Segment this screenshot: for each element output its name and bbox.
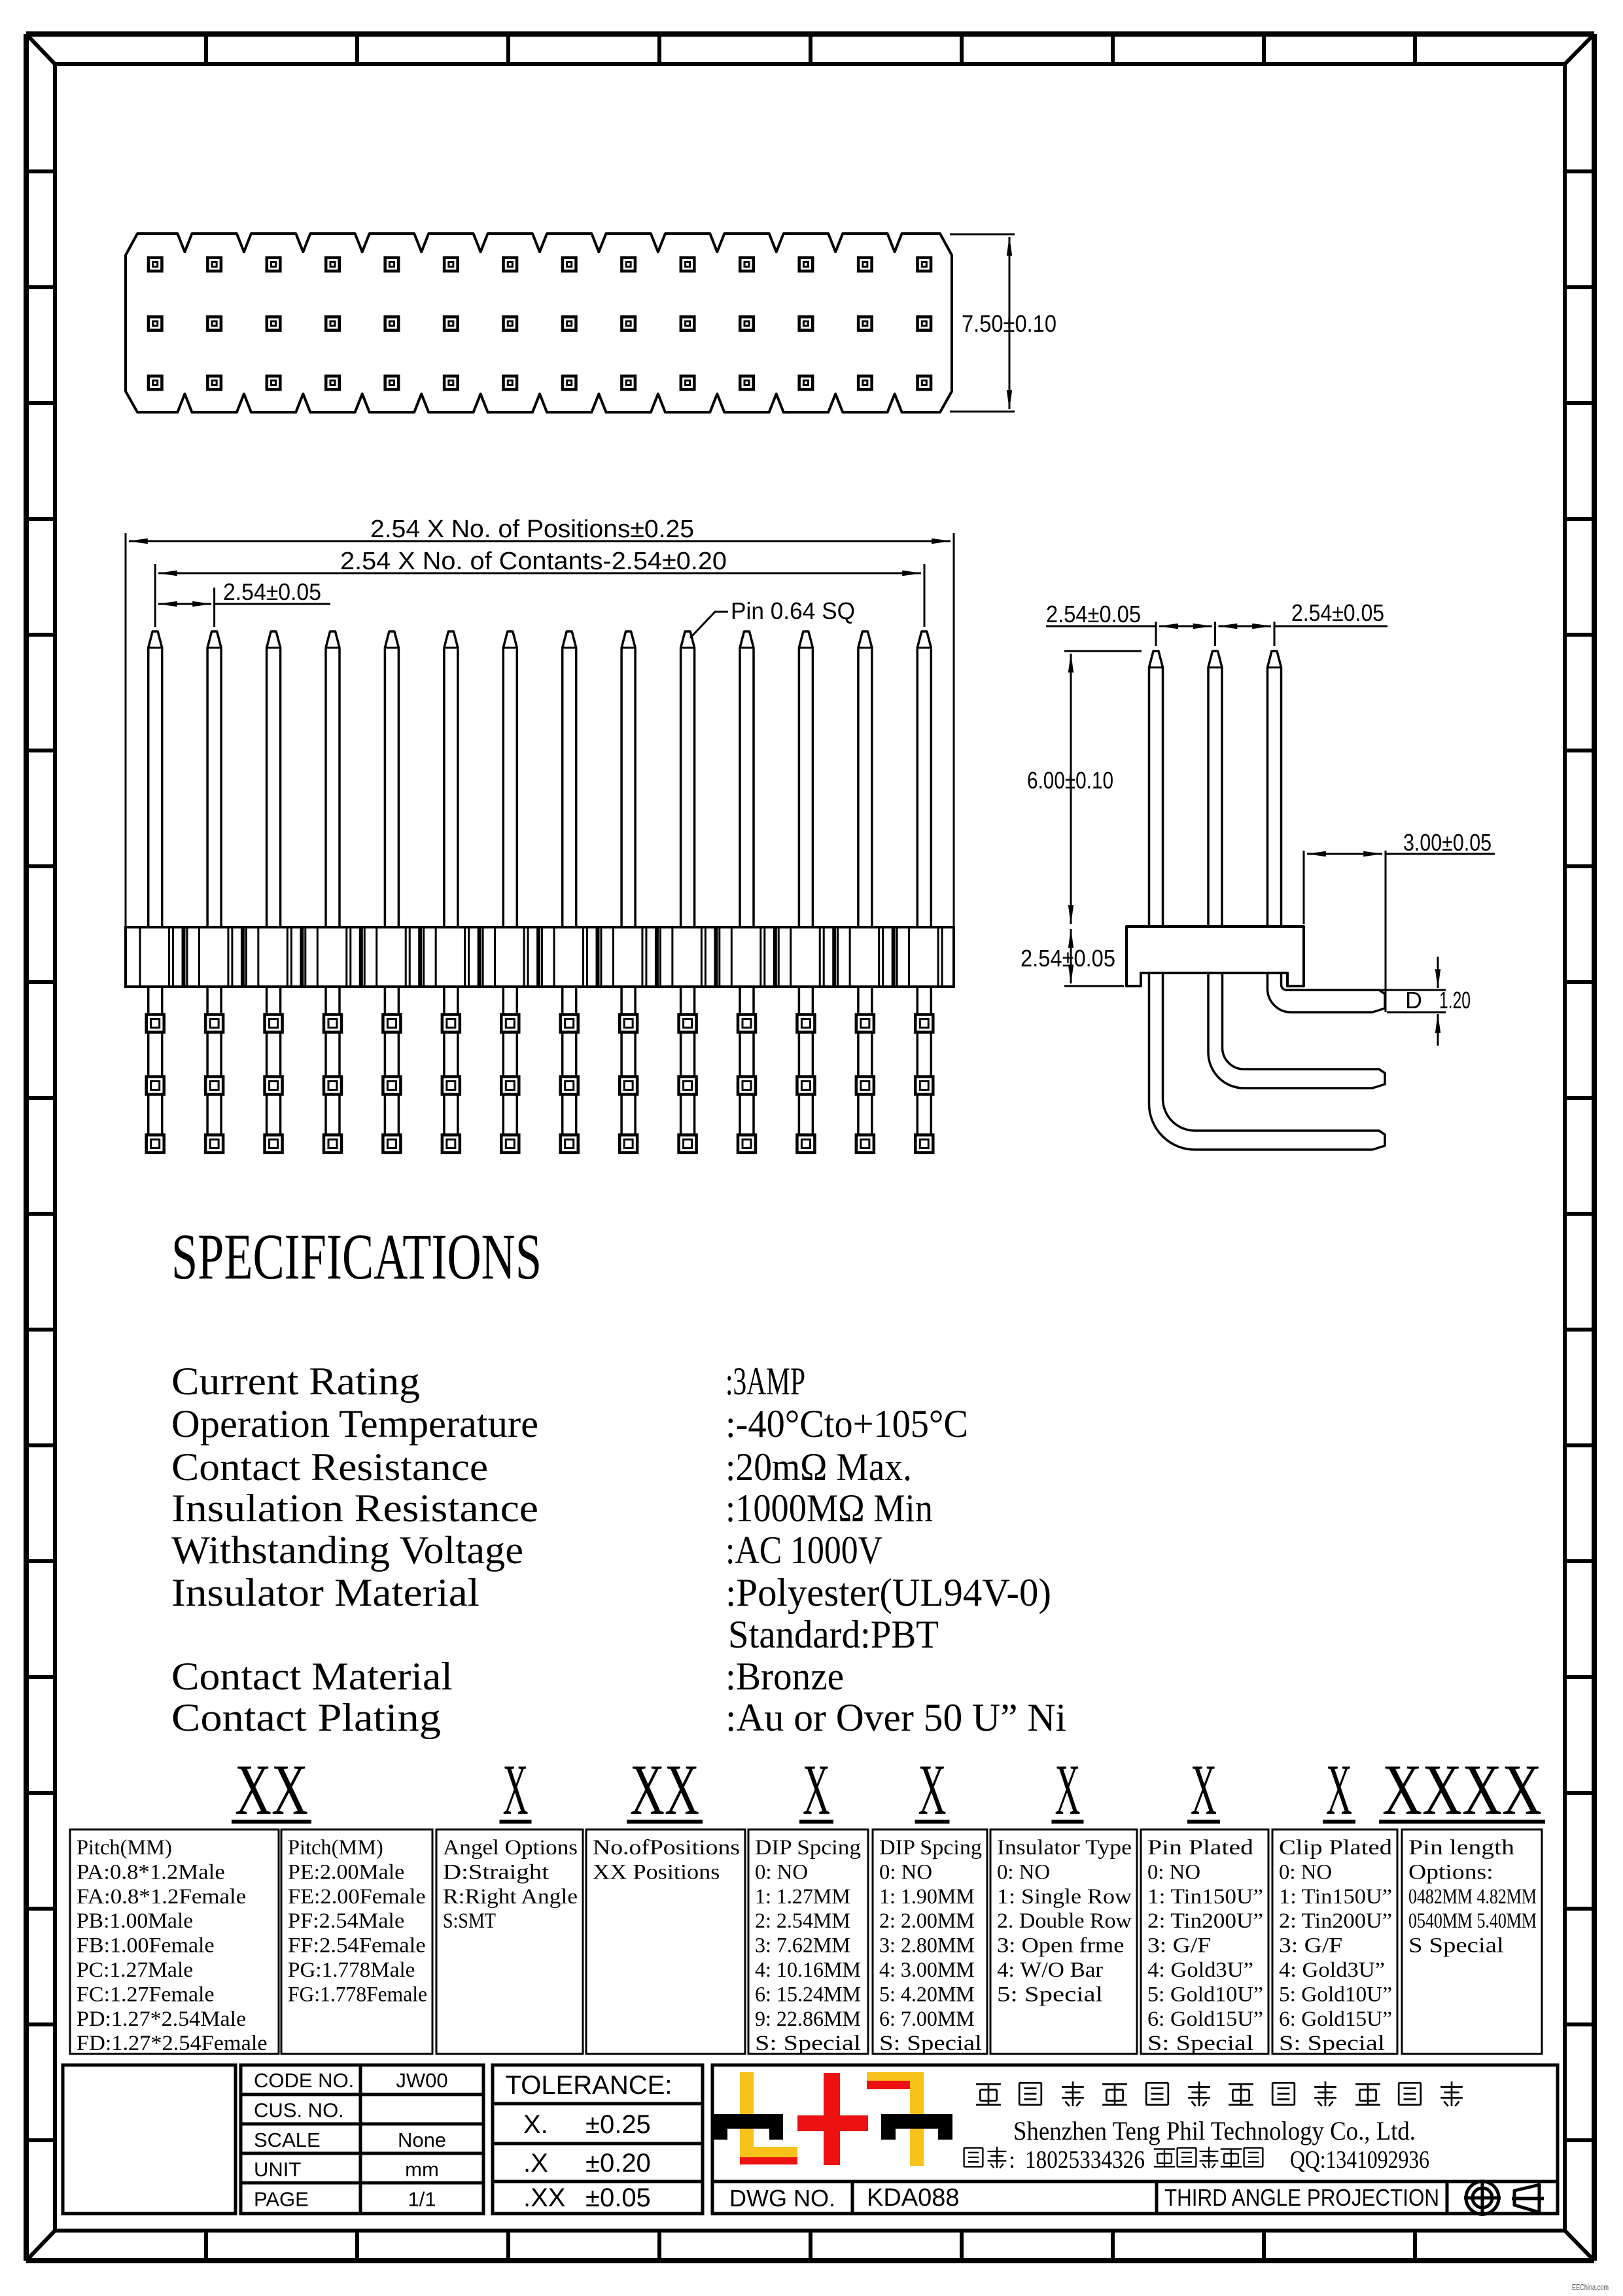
svg-text::20mΩ Max.: :20mΩ Max.: [725, 1445, 912, 1489]
svg-text:1: Tin150U”: 1: Tin150U”: [1147, 1885, 1263, 1909]
svg-text::AC 1000V: :AC 1000V: [725, 1528, 882, 1572]
svg-text::Bronze: :Bronze: [725, 1655, 844, 1698]
svg-text::1000MΩ Min: :1000MΩ Min: [725, 1487, 933, 1530]
svg-text:PF:2.54Male: PF:2.54Male: [288, 1909, 404, 1933]
svg-text:3: 7.62MM: 3: 7.62MM: [755, 1934, 850, 1958]
svg-text:X: X: [803, 1750, 830, 1829]
svg-text:3.00±0.05: 3.00±0.05: [1403, 829, 1492, 856]
svg-text:THIRD ANGLE PROJECTION: THIRD ANGLE PROJECTION: [1164, 2184, 1439, 2211]
svg-text:FD:1.27*2.54Female: FD:1.27*2.54Female: [77, 2032, 268, 2055]
svg-text:UNIT: UNIT: [254, 2158, 301, 2181]
svg-text:PG:1.778Male: PG:1.778Male: [288, 1958, 415, 1982]
svg-text:S:SMT: S:SMT: [443, 1909, 496, 1933]
svg-text:Clip Plated: Clip Plated: [1279, 1836, 1393, 1860]
svg-text:6: 15.24MM: 6: 15.24MM: [755, 1983, 861, 2006]
svg-text::3AMP: :3AMP: [725, 1360, 805, 1403]
svg-text:None: None: [398, 2128, 446, 2151]
svg-text:SPECIFICATIONS: SPECIFICATIONS: [171, 1220, 542, 1293]
svg-text:S: Special: S: Special: [1279, 2032, 1385, 2055]
svg-text:XX: XX: [630, 1750, 699, 1829]
svg-text:XXXX: XXXX: [1382, 1750, 1542, 1829]
svg-text:7.50±0.10: 7.50±0.10: [962, 310, 1056, 337]
svg-text:0: NO: 0: NO: [879, 1860, 932, 1884]
svg-text:X.: X.: [523, 2110, 548, 2139]
svg-text::-40°Cto+105°C: :-40°Cto+105°C: [725, 1402, 968, 1445]
svg-text:5: Special: 5: Special: [997, 1983, 1103, 2006]
svg-text:0482MM 4.82MM: 0482MM 4.82MM: [1408, 1885, 1537, 1909]
svg-text:FF:2.54Female: FF:2.54Female: [288, 1934, 426, 1958]
svg-text:1: 1.27MM: 1: 1.27MM: [755, 1885, 850, 1909]
svg-text:mm: mm: [405, 2158, 439, 2181]
svg-text:1: Tin150U”: 1: Tin150U”: [1279, 1885, 1392, 1909]
svg-text:.XX: .XX: [523, 2183, 565, 2212]
svg-text:X: X: [918, 1750, 947, 1829]
svg-text:Contact Material: Contact Material: [171, 1655, 453, 1698]
svg-text:FG:1.778Female: FG:1.778Female: [288, 1983, 427, 2006]
svg-text:3: 2.80MM: 3: 2.80MM: [879, 1934, 975, 1958]
svg-text:X: X: [503, 1750, 529, 1829]
svg-text:PC:1.27Male: PC:1.27Male: [77, 1958, 193, 1982]
svg-text:S Special: S Special: [1408, 1934, 1504, 1958]
svg-text:3: G/F: 3: G/F: [1147, 1934, 1211, 1958]
svg-text:PAGE: PAGE: [254, 2188, 309, 2211]
svg-text:DIP Spcing: DIP Spcing: [755, 1836, 861, 1860]
svg-text:Withstanding Voltage: Withstanding Voltage: [171, 1528, 523, 1572]
svg-text:No.ofPositions: No.ofPositions: [593, 1836, 740, 1860]
svg-text:2: 2.00MM: 2: 2.00MM: [879, 1909, 975, 1933]
svg-text:Pin length: Pin length: [1408, 1836, 1515, 1860]
svg-text:PB:1.00Male: PB:1.00Male: [77, 1909, 193, 1933]
svg-text:9: 22.86MM: 9: 22.86MM: [755, 2007, 861, 2031]
svg-text:6: Gold15U”: 6: Gold15U”: [1147, 2007, 1263, 2031]
svg-text:EEChina.com: EEChina.com: [1572, 2282, 1609, 2292]
svg-text::Polyester(UL94V-0): :Polyester(UL94V-0): [725, 1571, 1051, 1614]
svg-text:D: D: [1405, 987, 1422, 1014]
svg-text:KDA088: KDA088: [867, 2184, 960, 2212]
svg-text:SCALE: SCALE: [254, 2128, 321, 2151]
svg-text:4: 3.00MM: 4: 3.00MM: [879, 1958, 975, 1982]
svg-text:2.54 X No. of Positions±0.25: 2.54 X No. of Positions±0.25: [370, 516, 694, 543]
svg-text:0: NO: 0: NO: [1279, 1860, 1332, 1884]
svg-text:FB:1.00Female: FB:1.00Female: [77, 1934, 215, 1958]
svg-text:0: NO: 0: NO: [1147, 1860, 1200, 1884]
svg-text:Pitch(MM): Pitch(MM): [288, 1836, 383, 1860]
svg-text:1: Single Row: 1: Single Row: [997, 1885, 1132, 1909]
svg-text:PE:2.00Male: PE:2.00Male: [288, 1860, 404, 1884]
svg-text:R:Right Angle: R:Right Angle: [443, 1885, 578, 1909]
svg-text:Operation Temperature: Operation Temperature: [171, 1402, 538, 1445]
svg-text:CUS. NO.: CUS. NO.: [254, 2098, 344, 2121]
svg-text:S: Special: S: Special: [879, 2032, 982, 2055]
svg-text:5: Gold10U”: 5: Gold10U”: [1279, 1983, 1392, 2006]
svg-text:2.54±0.05: 2.54±0.05: [1046, 601, 1141, 627]
svg-text:S: Special: S: Special: [755, 2032, 861, 2055]
svg-text:0540MM 5.40MM: 0540MM 5.40MM: [1408, 1909, 1537, 1933]
svg-text:2: 2.54MM: 2: 2.54MM: [755, 1909, 850, 1933]
svg-text:FE:2.00Female: FE:2.00Female: [288, 1885, 426, 1909]
svg-text:FA:0.8*1.2Female: FA:0.8*1.2Female: [77, 1885, 246, 1909]
svg-text:2.54±0.05: 2.54±0.05: [223, 578, 321, 605]
svg-text:0: NO: 0: NO: [997, 1860, 1050, 1884]
svg-text:2. Double Row: 2. Double Row: [997, 1909, 1132, 1933]
svg-text:CODE NO.: CODE NO.: [254, 2069, 354, 2092]
svg-text:Current Rating: Current Rating: [171, 1360, 420, 1403]
svg-text:3: G/F: 3: G/F: [1279, 1934, 1342, 1958]
svg-text:±0.05: ±0.05: [585, 2183, 651, 2212]
svg-text:5: Gold10U”: 5: Gold10U”: [1147, 1983, 1263, 2006]
svg-text:DIP Spcing: DIP Spcing: [879, 1836, 982, 1860]
svg-text:Insulator Type: Insulator Type: [997, 1836, 1132, 1860]
svg-text:.X: .X: [523, 2149, 548, 2178]
svg-text:QQ:1341092936: QQ:1341092936: [1290, 2146, 1429, 2174]
svg-text::Au or Over 50 U” Ni: :Au or Over 50 U” Ni: [725, 1696, 1066, 1739]
svg-text:2: Tin200U”: 2: Tin200U”: [1147, 1909, 1263, 1933]
svg-text:XX: XX: [235, 1750, 308, 1829]
svg-text:6: 7.00MM: 6: 7.00MM: [879, 2007, 975, 2031]
svg-text:S: Special: S: Special: [1147, 2032, 1253, 2055]
svg-text:FC:1.27Female: FC:1.27Female: [77, 1983, 215, 2006]
svg-text:4: 10.16MM: 4: 10.16MM: [755, 1958, 861, 1982]
svg-text:Standard:PBT: Standard:PBT: [728, 1613, 939, 1656]
svg-text:X: X: [1191, 1750, 1217, 1829]
svg-text:PA:0.8*1.2Male: PA:0.8*1.2Male: [77, 1860, 225, 1884]
svg-text:Pin 0.64 SQ: Pin 0.64 SQ: [731, 597, 855, 624]
svg-text:X: X: [1326, 1750, 1352, 1829]
svg-text:Contact Resistance: Contact Resistance: [171, 1445, 488, 1489]
svg-text:PD:1.27*2.54Male: PD:1.27*2.54Male: [77, 2007, 246, 2031]
svg-text:Pitch(MM): Pitch(MM): [77, 1836, 172, 1860]
svg-text:Shenzhen Teng Phil Technology: Shenzhen Teng Phil Technology Co., Ltd.: [1013, 2116, 1416, 2146]
svg-text:5: 4.20MM: 5: 4.20MM: [879, 1983, 975, 2006]
svg-text:Insulator Material: Insulator Material: [171, 1571, 480, 1614]
svg-text:2: Tin200U”: 2: Tin200U”: [1279, 1909, 1392, 1933]
svg-text:1.20: 1.20: [1439, 987, 1471, 1014]
svg-text:±0.20: ±0.20: [585, 2149, 651, 2178]
svg-text:JW00: JW00: [396, 2069, 447, 2092]
svg-text:D:Straight: D:Straight: [443, 1860, 549, 1884]
svg-text:1/1: 1/1: [408, 2188, 436, 2211]
svg-text:0: NO: 0: NO: [755, 1860, 808, 1884]
svg-text:4: W/O Bar: 4: W/O Bar: [997, 1958, 1103, 1982]
svg-text:Insulation Resistance: Insulation Resistance: [171, 1487, 538, 1530]
svg-text:Angel Options: Angel Options: [443, 1836, 578, 1860]
svg-text:4: Gold3U”: 4: Gold3U”: [1147, 1958, 1253, 1982]
svg-text:Contact Plating: Contact Plating: [171, 1696, 441, 1739]
svg-text:4: Gold3U”: 4: Gold3U”: [1279, 1958, 1385, 1982]
svg-text:Pin Plated: Pin Plated: [1147, 1836, 1254, 1860]
svg-text:±0.25: ±0.25: [585, 2110, 651, 2139]
svg-text:18025334326: 18025334326: [1025, 2146, 1145, 2174]
svg-text:2.54±0.05: 2.54±0.05: [1021, 945, 1115, 972]
svg-text:6: Gold15U”: 6: Gold15U”: [1279, 2007, 1392, 2031]
svg-text:2.54±0.05: 2.54±0.05: [1291, 599, 1384, 626]
svg-text:Options:: Options:: [1408, 1860, 1493, 1884]
svg-text:DWG NO.: DWG NO.: [729, 2185, 835, 2212]
svg-text:1: 1.90MM: 1: 1.90MM: [879, 1885, 975, 1909]
svg-text:6.00±0.10: 6.00±0.10: [1027, 767, 1113, 794]
svg-text:XX Positions: XX Positions: [593, 1860, 720, 1884]
svg-text:X: X: [1055, 1750, 1081, 1829]
svg-text::: :: [1009, 2147, 1015, 2173]
svg-text:TOLERANCE:: TOLERANCE:: [506, 2071, 672, 2100]
svg-text:3: Open frme: 3: Open frme: [997, 1934, 1124, 1958]
svg-text:2.54 X No. of Contants-2.54±0.: 2.54 X No. of Contants-2.54±0.20: [340, 548, 727, 575]
